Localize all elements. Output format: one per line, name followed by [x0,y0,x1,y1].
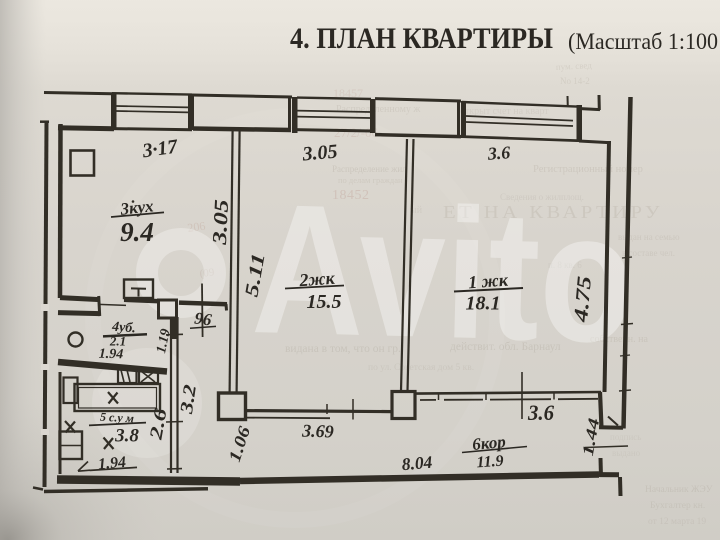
svg-text:3.05: 3.05 [209,199,233,246]
svg-text:4. ПЛАН КВАРТИРЫ: 4. ПЛАН КВАРТИРЫ [290,22,553,55]
svg-text:15.5: 15.5 [307,291,342,313]
svg-text:3.6: 3.6 [527,400,554,425]
svg-text:11.9: 11.9 [476,453,504,472]
svg-text:3.8: 3.8 [114,426,139,447]
svg-text:(Масштаб 1:100: (Масштаб 1:100 [568,29,718,54]
svg-text:8.04: 8.04 [401,452,434,475]
svg-text:18.1: 18.1 [466,293,501,315]
svg-text:No 14-2: No 14-2 [560,76,590,86]
svg-text:9.4: 9.4 [120,217,154,247]
svg-text:выдано: выдано [612,448,641,458]
svg-text:3.6: 3.6 [486,142,511,164]
svg-text:Начальник ЖЭУ: Начальник ЖЭУ [645,485,713,495]
svg-text:пум. свед: пум. свед [556,60,593,72]
svg-text:открыт счет на кварт: открыт счет на кварт [460,106,549,117]
svg-text:3.05: 3.05 [301,141,339,166]
svg-text:1.94: 1.94 [98,347,123,363]
svg-text:подпись: подпись [610,432,641,442]
svg-text:1.94: 1.94 [97,454,126,473]
svg-text:4.75: 4.75 [570,275,596,324]
svg-text:от 12 марта 19: от 12 марта 19 [648,517,706,527]
svg-text:Распределенному ж: Распределенному ж [336,104,420,115]
svg-text:Бухгалтер кн.: Бухгалтер кн. [650,501,705,511]
svg-text:3.69: 3.69 [301,420,334,441]
svg-text:3.2: 3.2 [176,383,200,416]
